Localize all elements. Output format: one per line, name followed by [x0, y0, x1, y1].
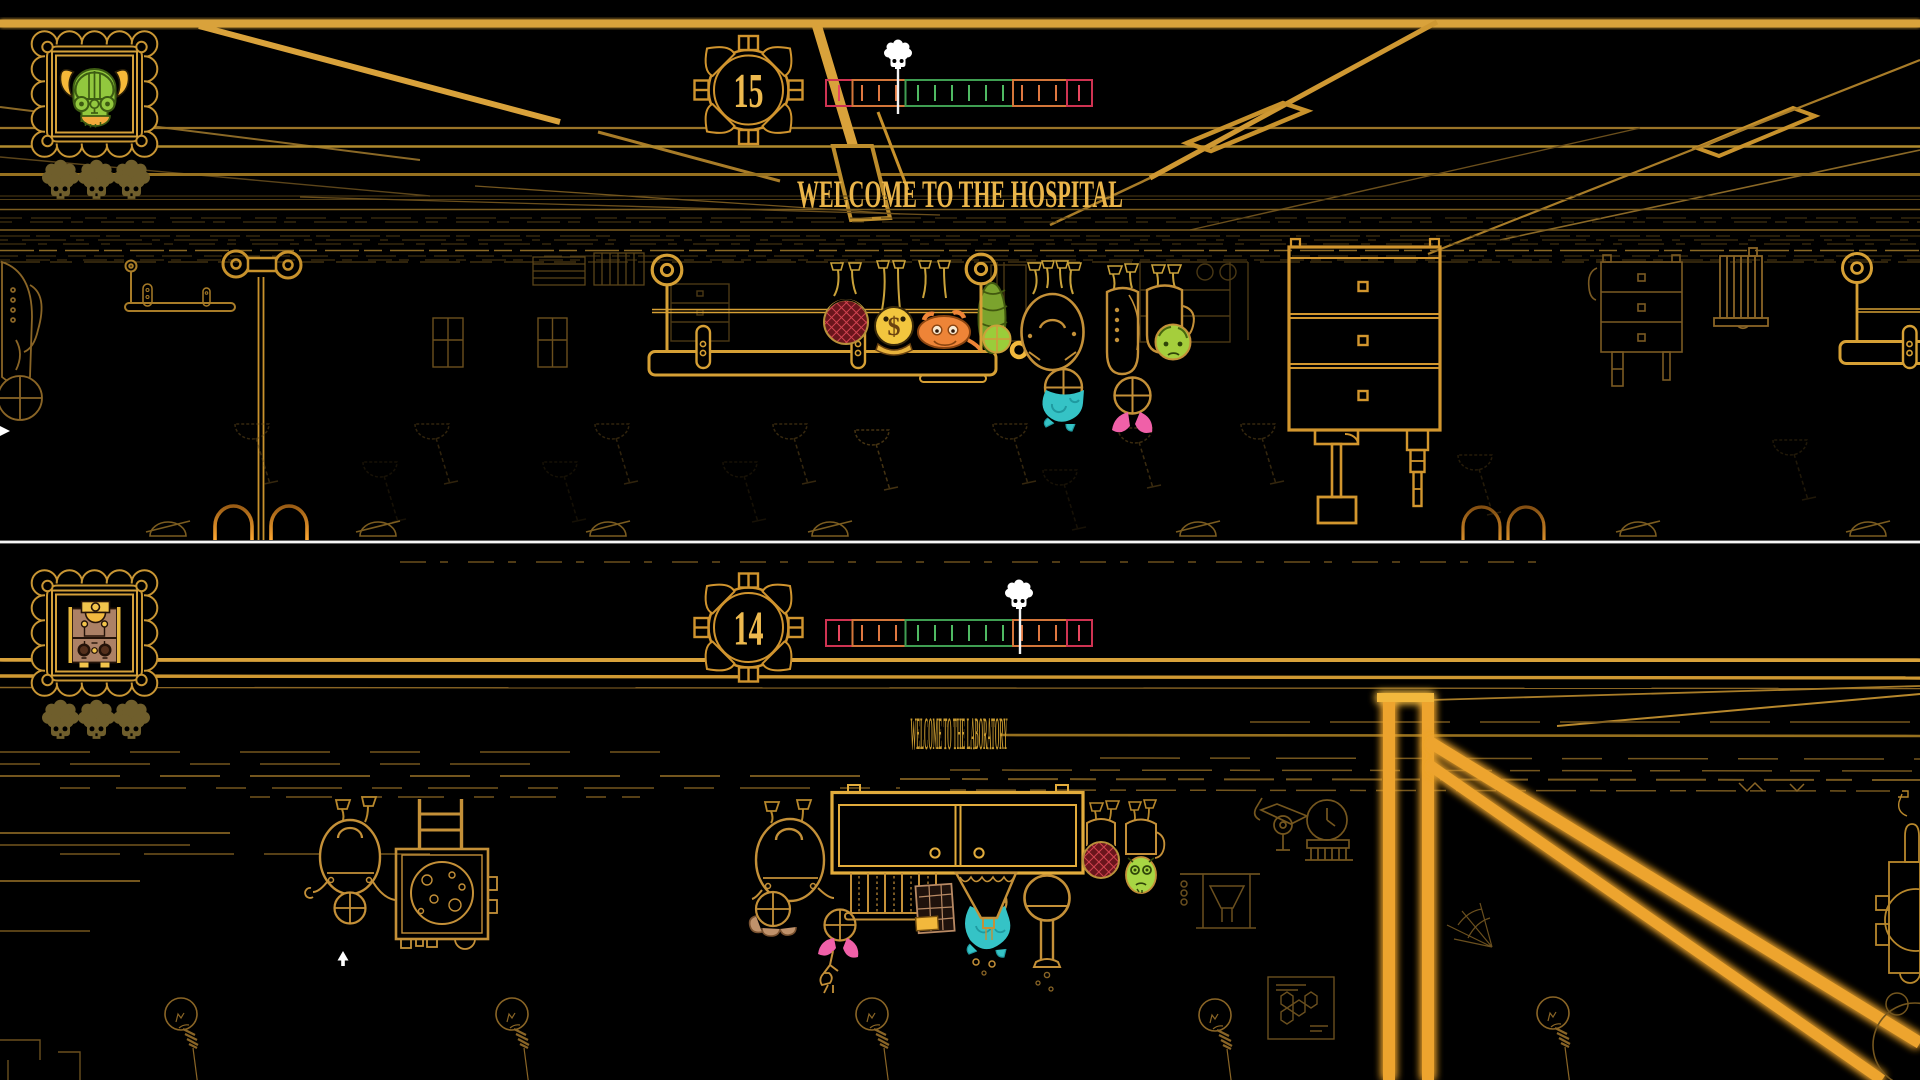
svg-text:15: 15 — [734, 63, 764, 118]
svg-text:$: $ — [888, 312, 901, 341]
svg-text:WELCOME TO THE HOSPITAL: WELCOME TO THE HOSPITAL — [797, 173, 1123, 216]
svg-text:WELCOME TO THE LABORATORY: WELCOME TO THE LABORATORY — [911, 708, 1008, 759]
svg-text:14: 14 — [734, 601, 764, 656]
